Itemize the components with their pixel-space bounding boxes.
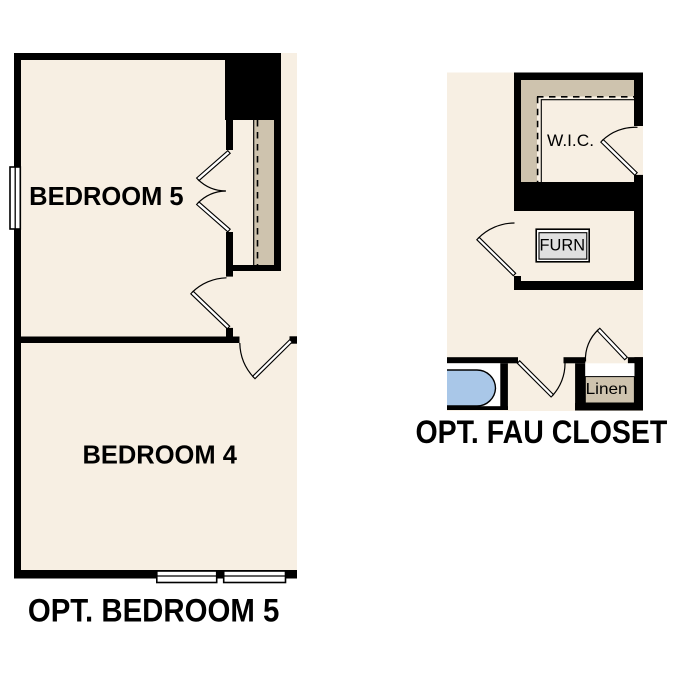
svg-text:OPT. BEDROOM 5: OPT. BEDROOM 5 (28, 592, 280, 628)
svg-text:Linen: Linen (586, 381, 628, 398)
svg-text:BEDROOM 4: BEDROOM 4 (82, 442, 237, 470)
svg-text:OPT. FAU CLOSET: OPT. FAU CLOSET (416, 414, 668, 450)
svg-text:BEDROOM 5: BEDROOM 5 (29, 183, 183, 211)
svg-text:FURN: FURN (540, 237, 586, 255)
svg-text:W.I.C.: W.I.C. (547, 132, 594, 150)
